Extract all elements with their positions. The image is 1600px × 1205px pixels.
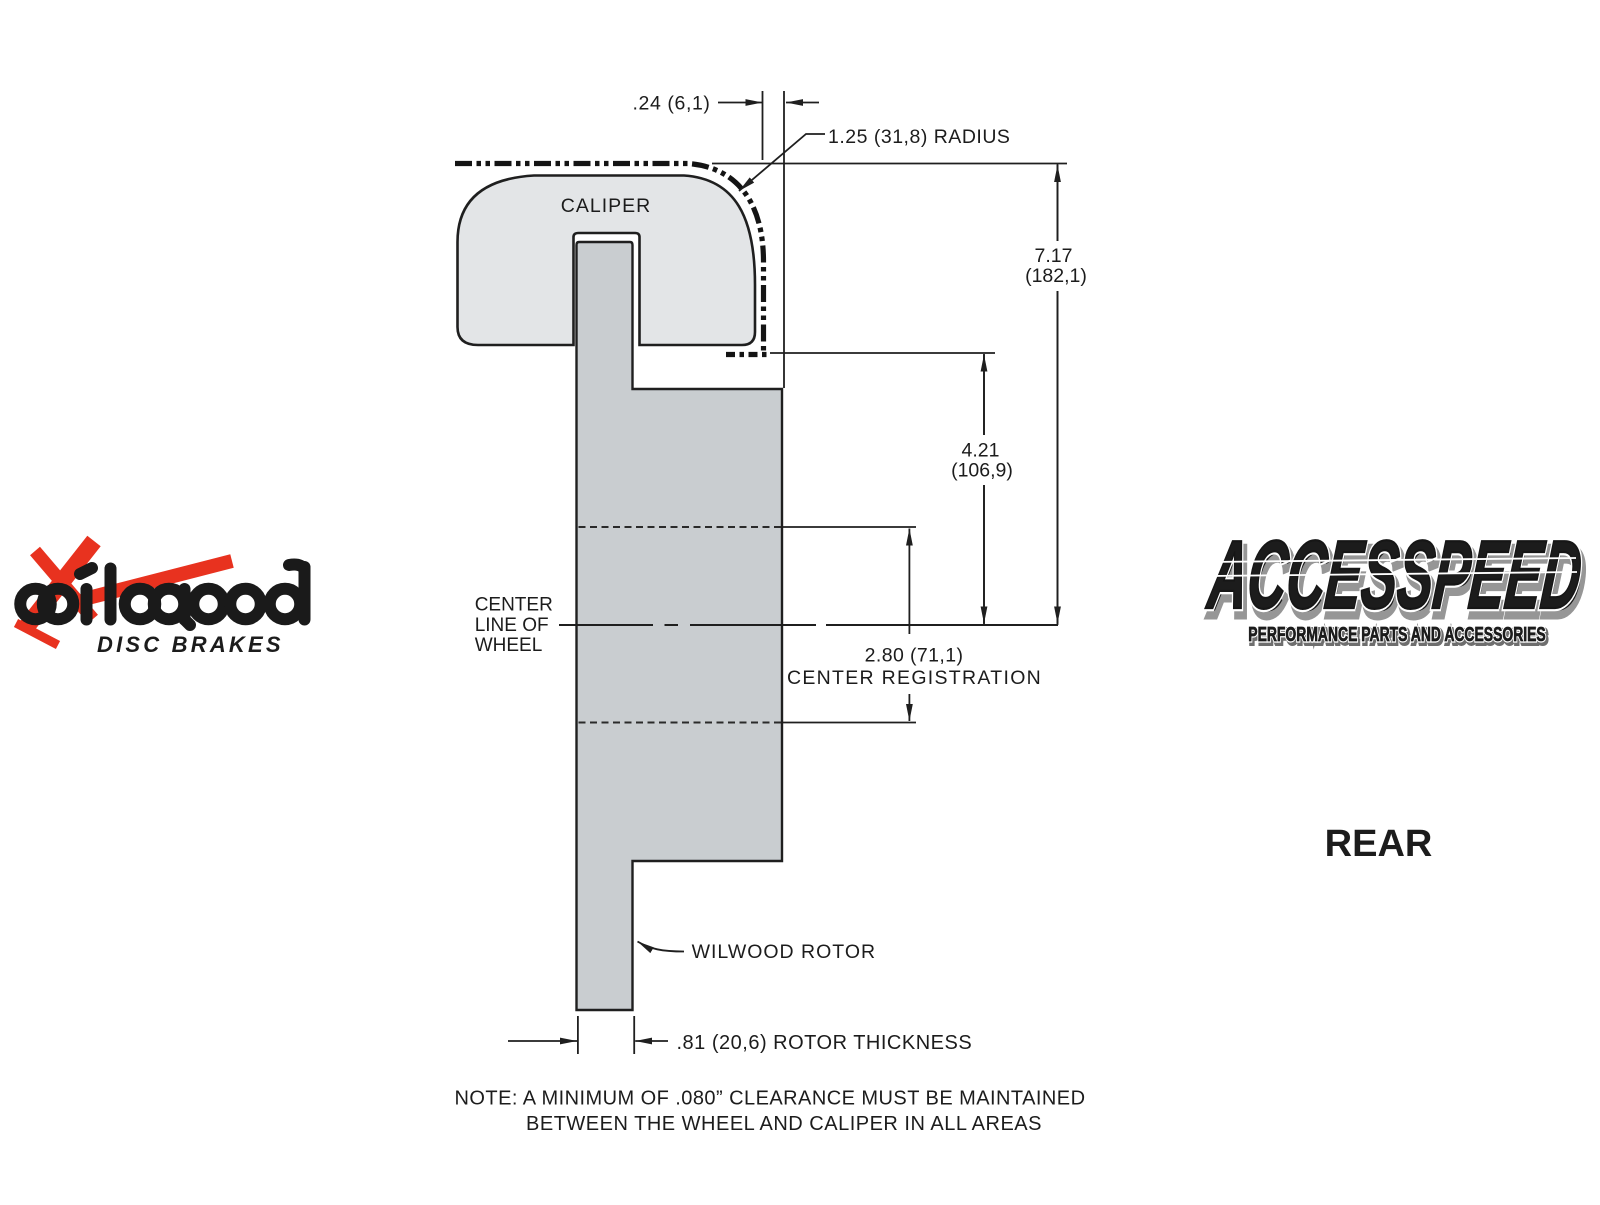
svg-text:PERFORMANCE PARTS AND ACCESSOR: PERFORMANCE PARTS AND ACCESSORIES — [1248, 622, 1545, 645]
svg-text:WHEEL: WHEEL — [475, 635, 543, 656]
svg-text:1.25 (31,8) RADIUS: 1.25 (31,8) RADIUS — [828, 126, 1010, 148]
svg-text:WILWOOD ROTOR: WILWOOD ROTOR — [692, 941, 877, 963]
svg-text:4.21: 4.21 — [962, 440, 1000, 462]
svg-text:(182,1): (182,1) — [1025, 265, 1087, 287]
svg-text:(106,9): (106,9) — [951, 460, 1013, 482]
svg-text:REAR: REAR — [1325, 823, 1433, 865]
svg-text:.24 (6,1): .24 (6,1) — [632, 93, 710, 115]
svg-text:2.80 (71,1): 2.80 (71,1) — [865, 645, 964, 667]
svg-text:LINE OF: LINE OF — [475, 615, 549, 636]
svg-text:CALIPER: CALIPER — [561, 195, 651, 217]
svg-text:7.17: 7.17 — [1035, 245, 1073, 267]
svg-text:NOTE: A MINIMUM OF .080” CLEAR: NOTE: A MINIMUM OF .080” CLEARANCE MUST … — [455, 1088, 1086, 1110]
svg-text:.81 (20,6) ROTOR THICKNESS: .81 (20,6) ROTOR THICKNESS — [677, 1032, 973, 1054]
svg-text:BETWEEN THE WHEEL AND CALIPER: BETWEEN THE WHEEL AND CALIPER IN ALL ARE… — [526, 1113, 1042, 1135]
svg-text:DISC BRAKES: DISC BRAKES — [97, 632, 284, 657]
svg-text:CENTER REGISTRATION: CENTER REGISTRATION — [787, 667, 1042, 689]
svg-text:CENTER: CENTER — [475, 595, 553, 616]
